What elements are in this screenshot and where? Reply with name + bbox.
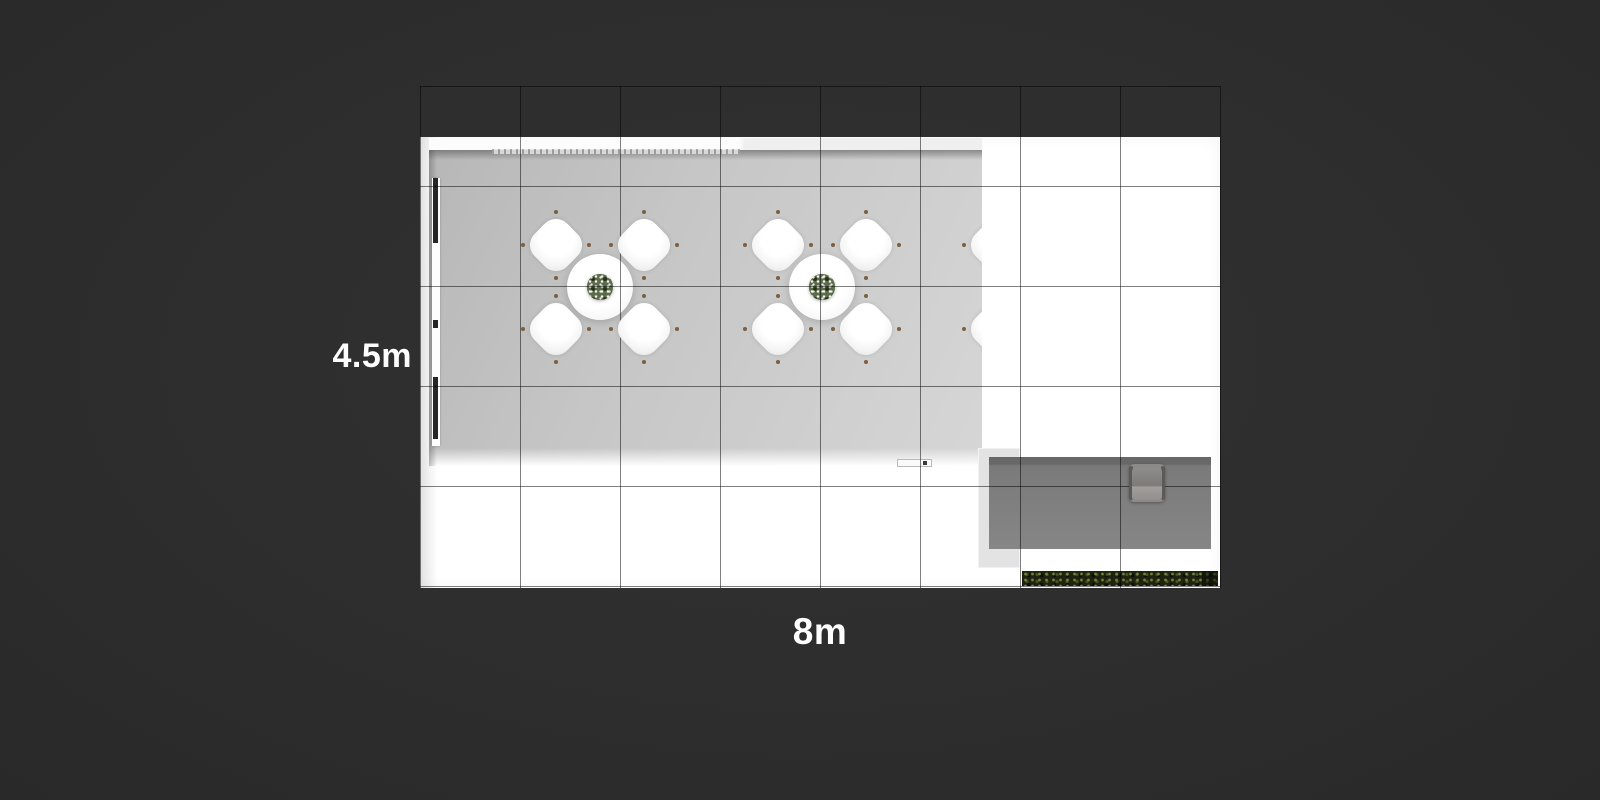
doorway-ledge <box>897 459 932 467</box>
clipped-dining-set <box>930 195 982 380</box>
wall-screen-bar <box>433 377 438 439</box>
hedge-planter <box>1022 571 1218 586</box>
wall-screen <box>432 178 440 446</box>
floor-plan-render: 4.5m 8m <box>0 0 1600 800</box>
dining-chair <box>964 212 982 277</box>
dining-chair <box>964 296 982 361</box>
booth-room-floor <box>429 150 982 466</box>
wall-screen-dot <box>433 320 438 328</box>
stool-seat <box>1132 468 1162 500</box>
storage-room <box>989 457 1211 549</box>
reception-counter-ticks <box>492 149 740 154</box>
width-dimension-label: 8m <box>760 611 880 653</box>
chair-foot <box>962 327 966 331</box>
wall-screen-bar <box>433 178 438 243</box>
height-dimension-label: 4.5m <box>300 337 412 376</box>
door-handle-dot <box>923 461 927 465</box>
storage-stool <box>1129 464 1165 502</box>
chair-foot <box>962 243 966 247</box>
partial-tables-sublayer <box>930 195 982 380</box>
partial-chairs-sublayer <box>930 195 982 380</box>
